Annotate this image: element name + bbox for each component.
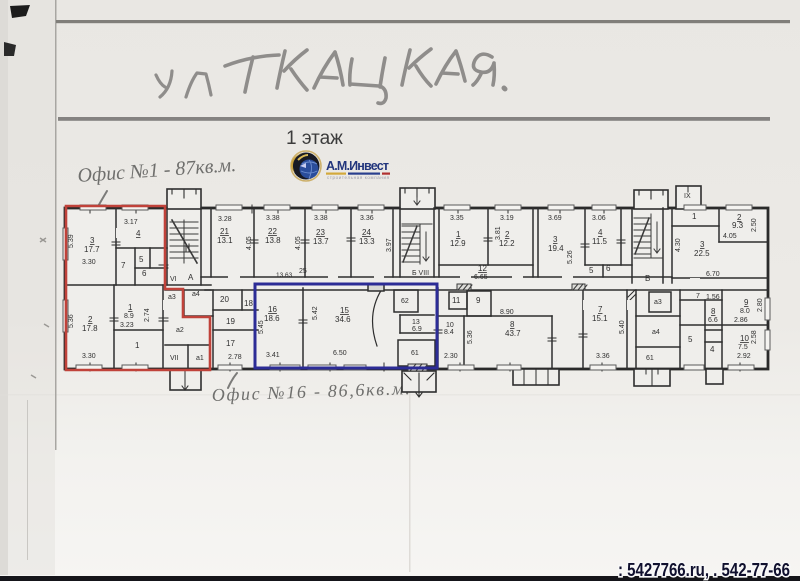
svg-text:3.28: 3.28 bbox=[218, 216, 232, 223]
svg-text:4.05: 4.05 bbox=[246, 236, 253, 250]
svg-text:5.45: 5.45 bbox=[258, 320, 265, 334]
svg-text:строительная компания: строительная компания bbox=[327, 175, 390, 180]
svg-text:5.39: 5.39 bbox=[68, 234, 75, 248]
svg-text:16: 16 bbox=[268, 305, 277, 314]
svg-text:13: 13 bbox=[412, 319, 420, 326]
svg-text:а4: а4 bbox=[192, 291, 200, 298]
svg-text:7: 7 bbox=[121, 261, 126, 270]
svg-text:19: 19 bbox=[226, 317, 235, 326]
svg-text:3.19: 3.19 bbox=[500, 215, 514, 222]
svg-text:5.36: 5.36 bbox=[68, 314, 75, 328]
svg-text:5: 5 bbox=[589, 266, 594, 275]
svg-text:13.8: 13.8 bbox=[265, 236, 281, 245]
svg-text:4.05: 4.05 bbox=[295, 236, 302, 250]
svg-text:3.23: 3.23 bbox=[120, 322, 134, 329]
svg-text:3.97: 3.97 bbox=[386, 238, 393, 252]
svg-text:12.9: 12.9 bbox=[450, 239, 466, 248]
svg-text:6.50: 6.50 bbox=[333, 350, 347, 357]
svg-text:24: 24 bbox=[362, 228, 371, 237]
svg-text:10: 10 bbox=[446, 322, 454, 329]
svg-text:2.92: 2.92 bbox=[737, 353, 751, 360]
svg-text:3.36: 3.36 bbox=[360, 215, 374, 222]
svg-text:6.65: 6.65 bbox=[474, 274, 488, 281]
svg-text:5.42: 5.42 bbox=[312, 306, 319, 320]
svg-text:17.8: 17.8 bbox=[82, 324, 98, 333]
svg-text:4: 4 bbox=[710, 345, 715, 354]
svg-text:3.35: 3.35 bbox=[450, 215, 464, 222]
svg-text:62: 62 bbox=[401, 298, 409, 305]
svg-text:13.1: 13.1 bbox=[217, 236, 233, 245]
svg-text:4.05: 4.05 bbox=[723, 233, 737, 240]
svg-text:В: В bbox=[645, 274, 650, 283]
svg-text:7.5: 7.5 bbox=[738, 344, 748, 351]
svg-text:1: 1 bbox=[135, 341, 140, 350]
svg-text:2.86: 2.86 bbox=[734, 317, 748, 324]
svg-text:8.0: 8.0 bbox=[740, 308, 750, 315]
svg-text:3.17: 3.17 bbox=[124, 219, 138, 226]
svg-text:23: 23 bbox=[316, 228, 325, 237]
svg-text:А.М.Инвест: А.М.Инвест bbox=[326, 159, 389, 173]
svg-text:10: 10 bbox=[740, 334, 749, 343]
svg-text:VII: VII bbox=[170, 355, 179, 362]
svg-text:9: 9 bbox=[744, 298, 749, 307]
svg-text:1 этаж: 1 этаж bbox=[286, 128, 343, 149]
svg-text:8: 8 bbox=[510, 320, 515, 329]
svg-text:3.81: 3.81 bbox=[495, 226, 502, 240]
svg-text:2.78: 2.78 bbox=[228, 354, 242, 361]
svg-text:34.6: 34.6 bbox=[335, 315, 351, 324]
svg-text:9.3: 9.3 bbox=[732, 221, 744, 230]
svg-text:а3: а3 bbox=[168, 294, 176, 301]
svg-text:6.6: 6.6 bbox=[708, 317, 718, 324]
svg-text:8.9: 8.9 bbox=[124, 313, 134, 320]
svg-text:21: 21 bbox=[220, 227, 229, 236]
svg-text:1.56: 1.56 bbox=[706, 294, 720, 301]
svg-text:8.90: 8.90 bbox=[500, 309, 514, 316]
svg-text:13.7: 13.7 bbox=[313, 237, 329, 246]
svg-text:3: 3 bbox=[90, 236, 95, 245]
svg-text:3: 3 bbox=[553, 235, 558, 244]
svg-text:7: 7 bbox=[696, 293, 700, 300]
svg-text:6.9: 6.9 bbox=[412, 326, 422, 333]
svg-text:1: 1 bbox=[456, 230, 461, 239]
svg-text:5.40: 5.40 bbox=[619, 320, 626, 334]
svg-text:3.41: 3.41 bbox=[266, 352, 280, 359]
svg-text:2.50: 2.50 bbox=[751, 218, 758, 232]
svg-text:8.4: 8.4 bbox=[444, 329, 454, 336]
svg-text:17.7: 17.7 bbox=[84, 245, 100, 254]
svg-text:43.7: 43.7 bbox=[505, 329, 521, 338]
svg-text:15: 15 bbox=[340, 306, 349, 315]
svg-text:А: А bbox=[188, 273, 194, 282]
svg-text:3.36: 3.36 bbox=[596, 353, 610, 360]
svg-text:12: 12 bbox=[478, 264, 487, 273]
svg-text:6.70: 6.70 bbox=[706, 271, 720, 278]
svg-text:VI: VI bbox=[170, 276, 177, 283]
svg-text:1: 1 bbox=[128, 303, 133, 312]
svg-text:4: 4 bbox=[136, 229, 141, 238]
svg-text:2: 2 bbox=[88, 315, 93, 324]
svg-text:5.36: 5.36 bbox=[467, 330, 474, 344]
svg-text:2.74: 2.74 bbox=[144, 308, 151, 322]
svg-text:а1: а1 bbox=[196, 355, 204, 362]
svg-text:13.3: 13.3 bbox=[359, 237, 375, 246]
svg-text:1: 1 bbox=[692, 212, 697, 221]
svg-text:3.38: 3.38 bbox=[314, 215, 328, 222]
svg-text:3.69: 3.69 bbox=[548, 215, 562, 222]
svg-text:20: 20 bbox=[220, 295, 229, 304]
svg-text:11: 11 bbox=[452, 296, 461, 305]
svg-text:2.30: 2.30 bbox=[444, 353, 458, 360]
svg-text:15.1: 15.1 bbox=[592, 314, 608, 323]
svg-text:18.6: 18.6 bbox=[264, 314, 280, 323]
svg-text:4.30: 4.30 bbox=[675, 238, 682, 252]
svg-text:22: 22 bbox=[268, 227, 277, 236]
svg-text:18: 18 bbox=[244, 299, 253, 308]
svg-text:а3: а3 bbox=[654, 299, 662, 306]
svg-text:9: 9 bbox=[476, 296, 481, 305]
svg-text:5: 5 bbox=[139, 255, 144, 264]
svg-text:а2: а2 bbox=[176, 327, 184, 334]
svg-text:3.30: 3.30 bbox=[82, 259, 96, 266]
svg-text:5.26: 5.26 bbox=[567, 250, 574, 264]
svg-text:61: 61 bbox=[411, 350, 419, 357]
svg-text:2: 2 bbox=[505, 230, 510, 239]
svg-text:22.5: 22.5 bbox=[694, 249, 710, 258]
svg-text:2.58: 2.58 bbox=[751, 330, 758, 344]
svg-text:3: 3 bbox=[700, 240, 705, 249]
svg-text:4: 4 bbox=[598, 228, 603, 237]
svg-text:5: 5 bbox=[688, 335, 693, 344]
svg-text:8: 8 bbox=[711, 307, 716, 316]
svg-text:7: 7 bbox=[598, 305, 603, 314]
svg-text:3.06: 3.06 bbox=[592, 215, 606, 222]
svg-text:2.80: 2.80 bbox=[757, 298, 764, 312]
svg-text:6: 6 bbox=[606, 264, 611, 273]
svg-text:17: 17 bbox=[226, 339, 235, 348]
svg-text:: 5427766.ru, . 542-77-66: : 5427766.ru, . 542-77-66 bbox=[618, 560, 790, 580]
svg-text:13.63: 13.63 bbox=[276, 272, 293, 279]
svg-text:11.5: 11.5 bbox=[592, 237, 608, 246]
svg-text:Б VIII: Б VIII bbox=[412, 270, 429, 277]
svg-text:3.30: 3.30 bbox=[82, 353, 96, 360]
svg-text:61: 61 bbox=[646, 355, 654, 362]
svg-text:3.38: 3.38 bbox=[266, 215, 280, 222]
svg-text:6: 6 bbox=[142, 269, 147, 278]
svg-text:19.4: 19.4 bbox=[548, 244, 564, 253]
svg-text:IX: IX bbox=[684, 193, 691, 200]
svg-text:25: 25 bbox=[299, 268, 307, 275]
svg-text:а4: а4 bbox=[652, 329, 660, 336]
